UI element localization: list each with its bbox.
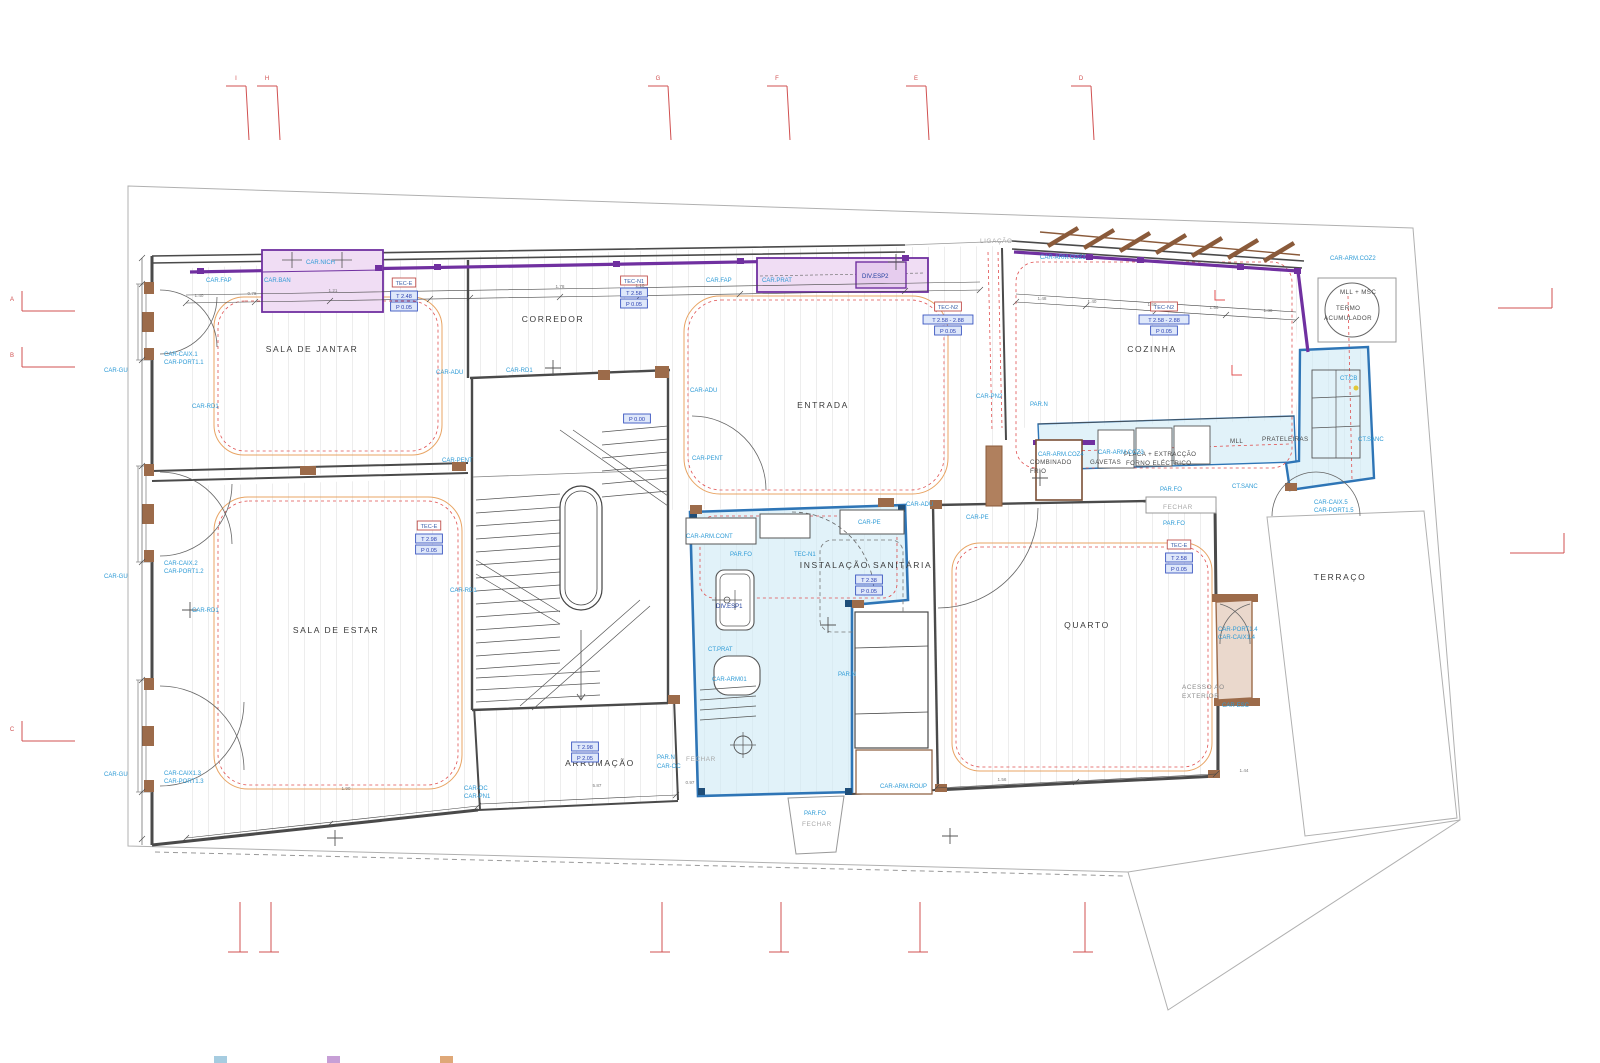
label-car-rd1: CAR-RD1 <box>192 404 219 410</box>
label-par-fo: PAR.FO <box>730 552 752 558</box>
label-car-arm01: CAR-ARM01 <box>712 677 747 683</box>
box-label-t-2-58-2-88: T 2.58 - 2.88 <box>1148 318 1180 324</box>
grid-tick <box>1498 288 1552 308</box>
grid-tick <box>906 86 929 140</box>
grid-tick <box>1510 533 1564 553</box>
grid-tick <box>1073 902 1093 952</box>
label-ct-prat: CT.PRAT <box>708 647 733 653</box>
label-terra-o: TERRAÇO <box>1314 572 1367 582</box>
label-car-oc: CAR-OC <box>657 764 681 770</box>
label-car-arm-coz4: CAR-ARM.COZ4 <box>1038 452 1084 458</box>
label-par-fo: PAR.FO <box>1163 521 1185 527</box>
label-car-arm-cont: CAR-ARM.CONT <box>686 534 733 540</box>
box-t-2-38: T 2.38 <box>856 575 883 584</box>
label-ct-cb: CT.CB <box>1340 376 1357 382</box>
label-car-arm-coz3: CAR-ARM.COZ3 <box>1098 450 1144 456</box>
label-par-fo: PAR.FO <box>804 811 826 817</box>
label-car-ban: CAR.BAN <box>264 278 291 284</box>
box-label-t-2-38: T 2.38 <box>861 578 877 584</box>
label-fechar: FECHAR <box>686 756 716 763</box>
label-instala-o-sanit-ria: INSTALAÇÃO SANITÁRIA <box>800 560 932 570</box>
box-label-p-0-05: P 0.05 <box>940 329 956 335</box>
label-entrada: ENTRADA <box>797 400 849 410</box>
box-t-2-98: T 2.98 <box>572 742 599 751</box>
label-0-78: 0.78 <box>248 291 257 296</box>
legend-swatches <box>214 1056 453 1063</box>
label-car-pent: CAR-PENT <box>692 456 723 462</box>
label-f: F <box>775 76 779 82</box>
label-car-caix-5: CAR-CAIX.5 <box>1314 500 1348 506</box>
label-car-port1-5: CAR-PORT1.5 <box>1314 508 1354 514</box>
box-label-p-0-05: P 0.05 <box>861 589 877 595</box>
label-a: A <box>10 297 14 303</box>
label-gavetas: GAVETAS <box>1090 459 1121 466</box>
box-t-2-98: T 2.98 <box>416 534 443 543</box>
grid-tick <box>226 86 249 140</box>
box-label-p-0-05: P 0.05 <box>396 305 412 311</box>
label-car-gu: CAR-GU <box>104 368 128 374</box>
label-fechar: FECHAR <box>1163 504 1193 511</box>
box-p-0-05: P 0.05 <box>856 586 883 595</box>
label-car-arm-roup: CAR-ARM.ROUP <box>880 784 927 790</box>
label-car-caix1-3: CAR-CAIX1.3 <box>164 771 202 777</box>
label-termo: TERMO <box>1336 305 1360 312</box>
box-label-t-2-48: T 2.48 <box>396 294 412 300</box>
label-frio: FRIO <box>1030 468 1046 475</box>
label-car-rd1: CAR-RD1 <box>450 588 477 594</box>
label-ct-sanc: CT.SANC <box>1232 484 1258 490</box>
label-i: I <box>235 76 237 82</box>
label-c: C <box>10 727 15 733</box>
box-p-0-05: P 0.05 <box>935 326 962 335</box>
label-car-pent: CAR-PENT <box>442 458 473 464</box>
box-label-t-2-58: T 2.58 <box>626 291 642 297</box>
label-car-fap: CAR.FAP <box>706 278 732 284</box>
box-t-2-58: T 2.58 <box>621 288 648 297</box>
box-p-0-05: P 0.05 <box>416 545 443 554</box>
label-quarto: QUARTO <box>1064 620 1110 630</box>
box-p-0-05: P 0.05 <box>391 302 418 311</box>
label-car-pn2: CAR-PN2 <box>976 394 1003 400</box>
box-label-p-0-00: P 0.00 <box>629 417 645 423</box>
label-par-fo: PAR.FO <box>1160 487 1182 493</box>
label-car-rd1: CAR-RD1 <box>506 368 533 374</box>
label-car-adu: CAR-ADU <box>690 388 717 394</box>
label-div-esp2: DIV.ESP2 <box>862 274 889 280</box>
label-car-rd1: CAR-RD1 <box>192 608 219 614</box>
label-liga-o: LIGAÇÃO <box>980 236 1013 245</box>
label-d: D <box>1079 76 1084 82</box>
label-g: G <box>656 76 661 82</box>
label-h: H <box>265 76 269 82</box>
box-tec-n2: TEC-N2 <box>935 302 962 311</box>
grid-tick <box>228 902 248 952</box>
label-par-n: PAR.N <box>657 755 675 761</box>
label-1-21: 1.21 <box>329 288 338 293</box>
box-label-tec-e: TEC-E <box>1171 543 1188 549</box>
label-car-gu: CAR-GU <box>104 772 128 778</box>
box-t-2-58-2-88: T 2.58 - 2.88 <box>923 315 973 324</box>
label-car-pe: CAR-PE <box>858 520 881 526</box>
label-sala-de-jantar: SALA DE JANTAR <box>266 344 359 354</box>
box-label-t-2-58: T 2.58 <box>1171 556 1187 562</box>
grid-tick <box>22 347 75 367</box>
box-label-t-2-98: T 2.98 <box>421 537 437 543</box>
label-car-port1-2: CAR-PORT1.2 <box>164 569 204 575</box>
box-label-p-2-05: P 2.05 <box>577 756 593 762</box>
label-car-port1-1: CAR-PORT1.1 <box>164 360 204 366</box>
box-p-0-05: P 0.05 <box>1166 564 1193 573</box>
box-label-tec-e: TEC-E <box>421 524 438 530</box>
label-1-78: 1.78 <box>556 284 565 289</box>
label-acumulador: ACUMULADOR <box>1324 315 1372 322</box>
box-label-tec-n2: TEC-N2 <box>1154 305 1174 311</box>
label-1-30: 1.30 <box>1264 308 1273 313</box>
label-car-adu: CAR-ADU <box>906 502 933 508</box>
label-0-97: 0.97 <box>686 780 695 785</box>
floor-plan-drawing: SALA DE JANTARCORREDORENTRADACOZINHASALA… <box>0 0 1600 1063</box>
label-car-oc: CAR-OC <box>464 786 488 792</box>
grid-tick <box>259 902 279 952</box>
box-label-p-0-05: P 0.05 <box>1156 329 1172 335</box>
grid-tick <box>650 902 670 952</box>
label-1-40: 1.40 <box>195 293 204 298</box>
label-1-10: 1.10 <box>636 283 645 288</box>
label-car-caix1-4: CAR-CAIX1.4 <box>1218 635 1256 641</box>
box-label-p-0-05: P 0.05 <box>1171 567 1187 573</box>
box-t-2-48: T 2.48 <box>391 291 418 300</box>
label-fechar: FECHAR <box>802 821 832 828</box>
label-car-prat: CAR.PRAT <box>762 278 792 284</box>
box-t-2-58: T 2.58 <box>1166 553 1193 562</box>
label-par-n: PAR.N <box>838 672 856 678</box>
label-car-arm-coz2: CAR-ARM.COZ2 <box>1330 256 1376 262</box>
label-car-caix-1: CAR-CAIX.1 <box>164 352 198 358</box>
grid-tick <box>648 86 671 140</box>
label-cozinha: COZINHA <box>1127 344 1176 354</box>
label-1-44: 1.44 <box>1240 768 1249 773</box>
legend-swatch <box>214 1056 227 1063</box>
box-tec-e: TEC-E <box>392 278 416 287</box>
label-car-arm-coz1: CAR-ARM.COZ1 <box>1040 255 1086 261</box>
label-car-fap: CAR.FAP <box>206 278 232 284</box>
label-car-adu: CAR-ADU <box>436 370 463 376</box>
label-b: B <box>10 353 14 359</box>
label-1-90: 1.90 <box>342 786 351 791</box>
box-tec-e: TEC-E <box>417 521 441 530</box>
grid-tick <box>257 86 280 140</box>
grid-tick <box>769 902 789 952</box>
box-label-p-0-05: P 0.05 <box>421 548 437 554</box>
grid-tick <box>22 721 75 741</box>
label-e: E <box>914 76 918 82</box>
label-prateleiras: PRATELEIRAS <box>1262 436 1309 443</box>
label-sala-de-estar: SALA DE ESTAR <box>293 625 379 635</box>
label-1-56: 1.56 <box>998 777 1007 782</box>
label-car-gu: CAR-GU <box>104 574 128 580</box>
label-car-pn1: CAR-PN1 <box>464 794 491 800</box>
label-car-port1-4: CAR-PORT1.4 <box>1218 627 1258 633</box>
box-p-0-05: P 0.05 <box>621 299 648 308</box>
label-1-50: 1.50 <box>1148 302 1157 307</box>
label-ct-sanc: CT.SANC <box>1358 437 1384 443</box>
box-label-t-2-98: T 2.98 <box>577 745 593 751</box>
box-p-2-05: P 2.05 <box>572 753 599 762</box>
box-t-2-58-2-88: T 2.58 - 2.88 <box>1139 315 1189 324</box>
box-tec-e: TEC-E <box>1167 540 1191 549</box>
label-1-48: 1.48 <box>1038 296 1047 301</box>
label-car-port1-3: CAR-PORT1.3 <box>164 779 204 785</box>
grid-tick <box>767 86 790 140</box>
grid-tick <box>22 291 75 311</box>
label-car-caix-2: CAR-CAIX.2 <box>164 561 198 567</box>
legend-swatch <box>440 1056 453 1063</box>
box-p-0-00: P 0.00 <box>624 414 651 423</box>
label-corredor: CORREDOR <box>522 314 584 324</box>
label-car-esc: CAR-ESC <box>1222 703 1250 709</box>
label-mll: MLL <box>1230 438 1243 445</box>
label-combinado: COMBINADO <box>1030 459 1072 466</box>
label-mll-msc: MLL + MSC <box>1340 289 1376 296</box>
grid-tick <box>908 902 928 952</box>
box-label-tec-e: TEC-E <box>396 281 413 287</box>
box-p-0-05: P 0.05 <box>1151 326 1178 335</box>
grid-tick <box>1071 86 1094 140</box>
label-exterior: EXTERIOR <box>1182 693 1219 700</box>
label-par-n: PAR.N <box>1030 402 1048 408</box>
box-label-tec-n2: TEC-N2 <box>938 305 958 311</box>
label-car-pe: CAR-PE <box>966 515 989 521</box>
label-acesso-ao: ACESSO AO <box>1182 684 1225 691</box>
label-1-40: 1.40 <box>1088 299 1097 304</box>
label-car-nich: CAR.NICH <box>306 260 335 266</box>
label-tec-n1: TEC-N1 <box>794 552 816 558</box>
box-label-p-0-05: P 0.05 <box>626 302 642 308</box>
label-forno-el-ctrico: FORNO ELÉCTRICO <box>1126 460 1191 467</box>
label-1-56: 1.56 <box>1210 305 1219 310</box>
label-5-87: 5.87 <box>593 783 602 788</box>
legend-swatch <box>327 1056 340 1063</box>
label-div-esp1: DIV.ESP1 <box>716 604 743 610</box>
floor-plan-sheet: SALA DE JANTARCORREDORENTRADACOZINHASALA… <box>0 0 1600 1063</box>
box-label-t-2-58-2-88: T 2.58 - 2.88 <box>932 318 964 324</box>
